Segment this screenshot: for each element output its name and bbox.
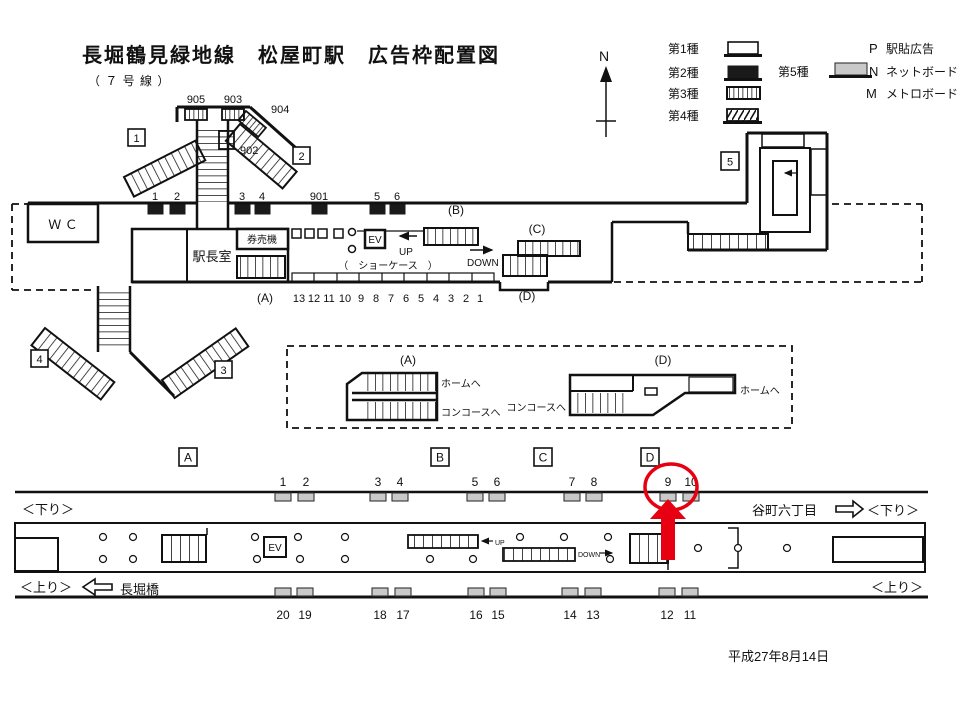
exit34-complex: 4 3: [31, 286, 248, 400]
pillar: [342, 556, 349, 563]
legend-type3-label: 第3種: [668, 87, 699, 101]
concourse-elevator-label: EV: [368, 235, 382, 246]
wall-ad-box-1: [148, 205, 163, 214]
legend-type3-swatch: [727, 87, 760, 99]
wall-ad-number: 6: [394, 191, 400, 203]
diagram-canvas: 長堀鶴見緑地線 松屋町駅 広告枠配置図 （ ７ 号 線 ） N 第1種 第2種 …: [0, 0, 960, 720]
concourse: Ｗ Ｃ 1 2 3 4 901 5 6 駅長室 券売機 EV U: [12, 191, 922, 305]
showcase-number: 8: [373, 293, 379, 305]
ad-slot: [395, 588, 411, 596]
area-d-label: (D): [519, 289, 536, 303]
up-direction-left: ＜上り＞: [20, 580, 72, 595]
platform-ad-number: 7: [569, 475, 576, 489]
legend-m-label: メトロボード: [886, 87, 958, 101]
platform-ad-number: 3: [375, 475, 382, 489]
legend-type2-swatch: [728, 66, 758, 78]
platform-ad-number: 6: [494, 475, 501, 489]
pillar: [695, 545, 702, 552]
showcase-number: 5: [418, 293, 424, 305]
pillar: [427, 556, 434, 563]
up-direction-right: ＜上り＞: [871, 580, 923, 595]
ad-slot: [659, 588, 675, 596]
stair-a-lower-rungs: [362, 402, 437, 419]
concourse-down-label: DOWN: [467, 258, 499, 269]
exit5-top-stairs: [762, 134, 804, 147]
pillar: [130, 556, 137, 563]
ticket-machine-label: 券売機: [247, 233, 277, 246]
office-label: 駅長室: [192, 249, 231, 264]
legend-m-key: M: [866, 86, 877, 101]
stair-d-rungs: [572, 393, 624, 413]
stair-c-lower-block: [503, 255, 547, 276]
pillar: [607, 556, 614, 563]
platform-ad-number: 11: [684, 608, 697, 622]
pillar: [470, 556, 477, 563]
showcase-number: 12: [308, 293, 320, 305]
showcase-label: （ ショーケース ）: [338, 260, 438, 272]
compass-north-label: N: [599, 48, 609, 64]
ad-slot: [562, 588, 578, 596]
down-direction-left: ＜下り＞: [22, 502, 74, 517]
exit1-stairs-band: [124, 141, 205, 197]
platform-ad-number: 5: [472, 475, 479, 489]
wall-ad-box-901: [312, 205, 327, 214]
showcase-number: 6: [403, 293, 409, 305]
stair-d-to-concourse: コンコースへ: [507, 403, 567, 414]
pillar: [297, 556, 304, 563]
exit4-number: 4: [36, 354, 42, 366]
exit2-number: 2: [298, 151, 304, 163]
exit5-number: 5: [727, 157, 733, 169]
showcase-number: 4: [433, 293, 439, 305]
legend-type2-label: 第2種: [668, 66, 699, 80]
platform-ad-number: 13: [586, 608, 600, 622]
ad-slot: [275, 588, 291, 596]
fare-gate: [334, 229, 343, 238]
area-a-label: (A): [257, 291, 273, 305]
exit5-side-stairs: [811, 149, 827, 195]
fare-gate: [318, 229, 327, 238]
stair-c-upper-block: [518, 241, 580, 256]
right-direction-arrow-icon: [836, 501, 863, 517]
ad-slot: [585, 588, 601, 596]
showcase-number: 1: [477, 293, 483, 305]
down-direction-right: ＜下り＞: [867, 503, 919, 518]
pillar: [130, 534, 137, 541]
gate-post: [349, 246, 356, 253]
detail-a-label: (A): [400, 353, 416, 367]
wall-ad-number: 5: [374, 191, 380, 203]
ad-slot: [392, 493, 408, 501]
ad-slot: [489, 493, 505, 501]
showcase-number: 3: [448, 293, 454, 305]
platform-left-stairs: [162, 535, 206, 562]
exit5-core-wall: [773, 161, 797, 215]
pillar: [342, 534, 349, 541]
detail-d-label: (D): [655, 353, 672, 367]
central-stair-rungs: [197, 126, 228, 202]
legend-type1-label: 第1種: [668, 42, 699, 56]
showcase-number: 11: [323, 293, 334, 305]
ad-slot: [370, 493, 386, 501]
compass: N: [596, 48, 616, 137]
wall-ad-number: 3: [239, 191, 245, 203]
exit3-number: 3: [220, 365, 226, 377]
platform-ad-number: 8: [591, 475, 598, 489]
stair-detail-box: (A) ホームへ コンコースへ (D) コンコースへ ホームへ: [287, 346, 792, 428]
pillar: [100, 534, 107, 541]
ad-slot: [298, 493, 314, 501]
wall-ad-number: 4: [259, 191, 265, 203]
legend-type1-swatch: [728, 42, 758, 54]
lower-ladder-rungs: [98, 290, 130, 350]
stair-d-to-platform: ホームへ: [740, 385, 780, 397]
stair-d-small-box: [645, 388, 657, 395]
section-a-label: A: [184, 451, 192, 465]
showcase-number: 9: [358, 293, 364, 305]
platform-up-escalator: [408, 535, 478, 548]
stair-a-upper-rungs: [362, 374, 437, 391]
ad-slot: [468, 588, 484, 596]
platform-elevator-label: EV: [268, 543, 282, 554]
ad-903-label: 903: [224, 94, 242, 106]
wall-ad-box-3: [235, 205, 250, 214]
stair-a-to-platform: ホームへ: [441, 378, 481, 390]
wall-ad-number: 1: [152, 191, 158, 203]
wall-ad-box-6: [390, 205, 405, 214]
ad-905-label: 905: [187, 94, 205, 106]
platform-ad-number: 2: [303, 475, 310, 489]
wall-ad-box-5: [370, 205, 385, 214]
corridor-walls: [612, 222, 688, 234]
left-direction-arrow-icon: [83, 579, 112, 595]
ad-slot: [467, 493, 483, 501]
ad-slot: [372, 588, 388, 596]
platform-section: A B C D 1 2 3 4 5 6 7 8 9 10 ＜下り＞ 谷町六丁目 …: [15, 448, 928, 622]
ad-slot: [586, 493, 602, 501]
ad-slot: [564, 493, 580, 501]
section-c-label: C: [539, 451, 548, 465]
pillar: [784, 545, 791, 552]
platform-ad-number: 16: [469, 608, 483, 622]
wall-ad-number: 2: [174, 191, 180, 203]
legend-type5-swatch: [835, 63, 867, 75]
ad-904-label: 904: [271, 104, 289, 116]
next-station-right: 谷町六丁目: [752, 503, 817, 518]
legend-type4-swatch: [727, 109, 758, 121]
platform-ad-number-highlighted: 9: [665, 475, 672, 489]
area-b-label: (B): [448, 203, 464, 217]
showcase-number: 10: [339, 293, 351, 305]
wc-label: Ｗ Ｃ: [48, 217, 78, 232]
section-b-label: B: [436, 451, 444, 465]
exit1-stairs: [124, 141, 205, 197]
area-c-label: (C): [529, 222, 546, 236]
ad-slot: [297, 588, 313, 596]
platform-ad-number: 18: [373, 608, 387, 622]
platform-ad-number: 14: [563, 608, 577, 622]
ad-slot: [275, 493, 291, 501]
compass-arrow-icon: [600, 66, 612, 82]
ad-905-box: [185, 109, 207, 120]
section-d-label: D: [646, 451, 655, 465]
corridor-stairs: [688, 234, 768, 250]
platform-down-escalator: [503, 548, 575, 561]
pillar: [605, 534, 612, 541]
platform-ad-number: 20: [276, 608, 290, 622]
ad-slot: [490, 588, 506, 596]
fare-gate: [305, 229, 314, 238]
legend-p-key: P: [869, 41, 878, 56]
station-diagram: 長堀鶴見緑地線 松屋町駅 広告枠配置図 （ ７ 号 線 ） N 第1種 第2種 …: [0, 0, 960, 720]
gate-post: [349, 229, 356, 236]
showcase-number: 13: [293, 293, 305, 305]
wall-ad-number: 901: [310, 191, 328, 203]
legend-type5-label: 第5種: [778, 65, 809, 79]
exit5-complex: 5: [612, 133, 827, 250]
platform-up-label: UP: [495, 540, 505, 547]
concourse-up-label: UP: [399, 247, 413, 258]
pillar: [252, 534, 259, 541]
fare-gate: [292, 229, 301, 238]
legend: 第1種 第2種 第3種 第4種 第5種 P 駅貼広告 N ネットボード M メト…: [668, 41, 958, 123]
legend-type4-label: 第4種: [668, 109, 699, 123]
page-subtitle: （ ７ 号 線 ）: [88, 73, 170, 88]
platform-ad-number: 4: [397, 475, 404, 489]
exit3-stairs-band: [162, 328, 248, 398]
exit1-number: 1: [133, 133, 139, 145]
header: 長堀鶴見緑地線 松屋町駅 広告枠配置図 （ ７ 号 線 ）: [82, 43, 500, 88]
platform-ad-number: 1: [280, 475, 287, 489]
legend-p-label: 駅貼広告: [886, 41, 934, 56]
escalator-b-block: [424, 228, 478, 245]
wall-ad-box-2: [170, 205, 185, 214]
page-title: 長堀鶴見緑地線 松屋町駅 広告枠配置図: [82, 43, 500, 67]
next-station-left: 長堀橋: [120, 582, 159, 597]
platform-ad-number: 12: [660, 608, 674, 622]
showcase-number: 7: [388, 293, 394, 305]
platform-ad-number: 19: [298, 608, 312, 622]
pillar: [100, 556, 107, 563]
pillar: [517, 534, 524, 541]
platform-down-label: DOWN: [578, 552, 600, 559]
pillar: [735, 545, 742, 552]
stair-a-block: [237, 256, 285, 278]
pillar: [254, 556, 261, 563]
pillar: [561, 534, 568, 541]
exit3-stairs: [162, 328, 248, 398]
legend-n-label: ネットボード: [886, 65, 958, 79]
legend-n-key: N: [869, 64, 878, 79]
stair-a-to-concourse: コンコースへ: [441, 408, 501, 419]
revision-date: 平成27年8月14日: [728, 649, 829, 664]
pillar: [295, 534, 302, 541]
wall-ad-box-4: [255, 205, 270, 214]
showcase-number: 2: [463, 293, 469, 305]
platform-ad-number: 17: [396, 608, 410, 622]
ad-slot: [682, 588, 698, 596]
platform-ad-number: 15: [491, 608, 505, 622]
